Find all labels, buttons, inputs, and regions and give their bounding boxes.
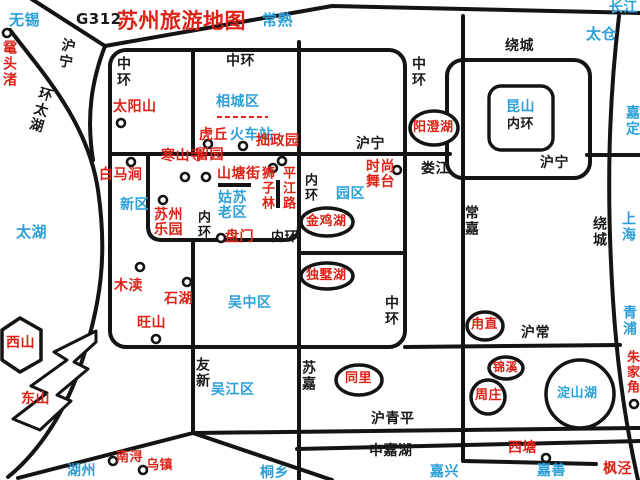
poi-dot bbox=[217, 234, 225, 242]
city-taicang: 太仓 bbox=[586, 26, 617, 43]
road-zhonghuan-northeast: 中环 bbox=[411, 56, 425, 88]
poi-panmen: 盘门 bbox=[225, 230, 254, 245]
poi-zhuozhengyuan: 拙政园 bbox=[256, 134, 300, 149]
road-huchang-line bbox=[405, 345, 620, 347]
road-youxin: 友新 bbox=[195, 357, 209, 389]
poi-shihu: 石湖 bbox=[164, 292, 193, 307]
poi-shizilin: 狮子林 bbox=[260, 166, 273, 211]
town-nanxun: 南浔 bbox=[116, 451, 143, 465]
poi-dot bbox=[542, 454, 550, 462]
town-fengjing: 枫泾 bbox=[603, 462, 632, 477]
road-shenjiahu-line bbox=[297, 441, 640, 449]
poi-mudu: 木渎 bbox=[114, 279, 143, 294]
poi-dot bbox=[630, 400, 638, 408]
road-g312-label: G312 bbox=[76, 11, 122, 28]
town-jinxi: 锦溪 bbox=[493, 361, 518, 374]
poi-dot bbox=[183, 278, 191, 286]
district-gusu-laoqu: 姑苏 老区 bbox=[218, 191, 247, 222]
town-tongli: 同里 bbox=[345, 372, 372, 386]
lake-yangchenghu: 阳澄湖 bbox=[413, 121, 454, 135]
road-changjia: 常嘉 bbox=[464, 205, 478, 237]
road-raocheng-east-line bbox=[609, 16, 638, 480]
poi-dot bbox=[3, 29, 11, 37]
city-changshu: 常熟 bbox=[262, 12, 293, 29]
poi-baimajian: 白马涧 bbox=[99, 168, 143, 183]
road-neihuan-south: 内环 bbox=[271, 231, 298, 245]
road-xitang-stub bbox=[463, 461, 596, 464]
poi-dot bbox=[181, 173, 189, 181]
poi-liuyuan: 留园 bbox=[195, 148, 224, 163]
poi-dot bbox=[117, 119, 125, 127]
poi-wangshan: 旺山 bbox=[137, 316, 166, 331]
city-qingpu: 青浦 bbox=[622, 305, 636, 337]
lake-dianshanhu: 淀山湖 bbox=[557, 387, 598, 401]
city-tongxiang: 桐乡 bbox=[260, 466, 289, 480]
town-zhujiajiao: 朱家角 bbox=[625, 350, 638, 395]
city-jiaxing: 嘉兴 bbox=[430, 465, 459, 480]
road-huchang: 沪常 bbox=[521, 326, 550, 341]
town-zhouzhuang: 周庄 bbox=[475, 389, 502, 403]
poi-dot bbox=[202, 173, 210, 181]
district-wuzhong: 吴中区 bbox=[228, 296, 272, 311]
poi-dot bbox=[278, 157, 286, 165]
poi-dongshan: 东山 bbox=[21, 392, 50, 407]
road-sujia: 苏嘉 bbox=[301, 360, 315, 392]
city-huzhou: 湖州 bbox=[67, 464, 96, 479]
road-huning-west: 沪宁 bbox=[356, 137, 385, 152]
river-changjiang: 长江 bbox=[609, 1, 638, 16]
poi-suzhou-leyuan: 苏州 乐园 bbox=[154, 208, 183, 239]
road-zhonghuan-southeast: 中环 bbox=[384, 295, 398, 327]
river-loujiang: 娄江 bbox=[421, 162, 450, 177]
map-title: 苏州旅游地图 bbox=[117, 10, 246, 33]
city-shanghai: 上海 bbox=[621, 211, 635, 243]
poi-shishang-wutai: 时尚 舞台 bbox=[366, 160, 395, 191]
poi-dot bbox=[136, 263, 144, 271]
city-jiading: 嘉定 bbox=[625, 105, 639, 137]
city-wuxi: 无锡 bbox=[9, 12, 40, 29]
road-raocheng-north: 绕城 bbox=[505, 39, 534, 54]
lake-dushuhu: 独墅湖 bbox=[306, 269, 347, 283]
district-wujiang: 吴江区 bbox=[211, 383, 255, 398]
road-huning-nw-line bbox=[90, 46, 105, 160]
road-neihuan-west: 内环 bbox=[196, 210, 209, 240]
district-xiangcheng: 相城区 bbox=[216, 95, 260, 110]
suzhou-tourist-map: 无锡G312苏州旅游地图常熟长江鼋头渚沪宁环太湖太湖中环中环中环绕城太仓嘉定太阳… bbox=[0, 0, 640, 480]
city-jiashan: 嘉善 bbox=[537, 464, 566, 479]
road-neihuan-east: 内环 bbox=[303, 173, 316, 203]
road-pingjianglu: 平江路 bbox=[281, 166, 294, 211]
town-wuzhen: 乌镇 bbox=[146, 459, 173, 473]
lake-jinjihu: 金鸡湖 bbox=[306, 215, 347, 229]
town-luzhi: 甪直 bbox=[471, 318, 498, 332]
poi-yuantouzhu: 鼋头渚 bbox=[2, 40, 16, 88]
district-xinqu: 新区 bbox=[120, 198, 149, 213]
road-raocheng-east: 绕城 bbox=[592, 216, 606, 248]
city-kunshan: 昆山 bbox=[506, 100, 535, 115]
poi-taiyangshan: 太阳山 bbox=[113, 100, 157, 115]
town-xitang: 西塘 bbox=[508, 441, 537, 456]
poi-dot bbox=[152, 335, 160, 343]
poi-shantangjie: 山塘街 bbox=[217, 167, 261, 182]
district-yuanqu: 园区 bbox=[336, 187, 365, 202]
poi-shantangjie-bar bbox=[218, 183, 251, 187]
poi-huqiu: 虎丘 bbox=[199, 128, 228, 143]
road-network bbox=[0, 0, 640, 480]
poi-xishan: 西山 bbox=[6, 336, 35, 351]
road-shenjiahu: 申嘉湖 bbox=[369, 444, 413, 459]
lake-taihu: 太湖 bbox=[16, 224, 47, 241]
poi-dot bbox=[127, 158, 135, 166]
road-huqingping: 沪青平 bbox=[371, 412, 415, 427]
road-huning-east: 沪宁 bbox=[540, 156, 569, 171]
road-zhonghuan-north: 中环 bbox=[226, 54, 255, 69]
road-zhonghuan-west: 中环 bbox=[116, 56, 130, 88]
poi-dot bbox=[159, 196, 167, 204]
road-neihuan-kunshan: 内环 bbox=[507, 118, 534, 132]
